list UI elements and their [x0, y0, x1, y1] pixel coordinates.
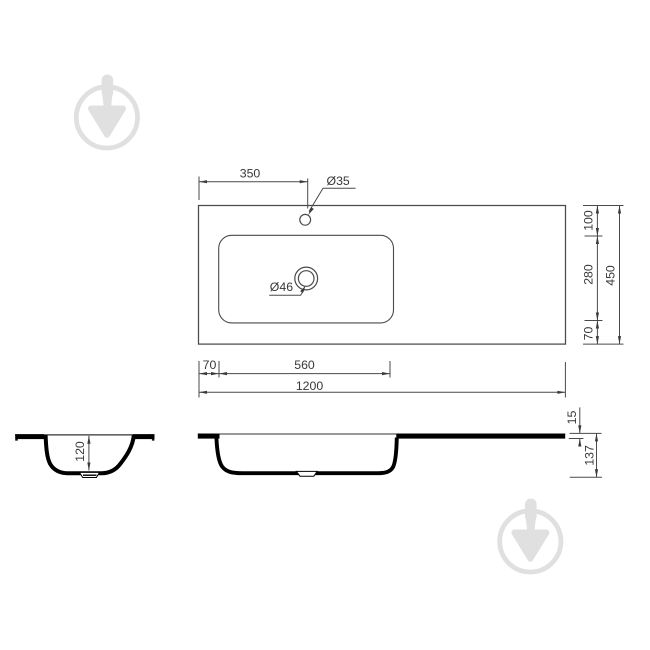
svg-text:280: 280	[582, 264, 596, 285]
svg-text:1200: 1200	[296, 379, 324, 393]
svg-text:100: 100	[582, 210, 596, 231]
svg-text:70: 70	[582, 327, 596, 341]
svg-text:350: 350	[240, 166, 261, 180]
svg-text:Ø35: Ø35	[327, 174, 350, 188]
svg-text:15: 15	[565, 411, 579, 425]
svg-text:560: 560	[294, 358, 315, 372]
svg-text:Ø46: Ø46	[270, 280, 293, 294]
svg-text:137: 137	[582, 445, 596, 466]
svg-text:70: 70	[203, 358, 217, 372]
svg-text:120: 120	[73, 441, 87, 462]
svg-text:450: 450	[604, 265, 618, 286]
